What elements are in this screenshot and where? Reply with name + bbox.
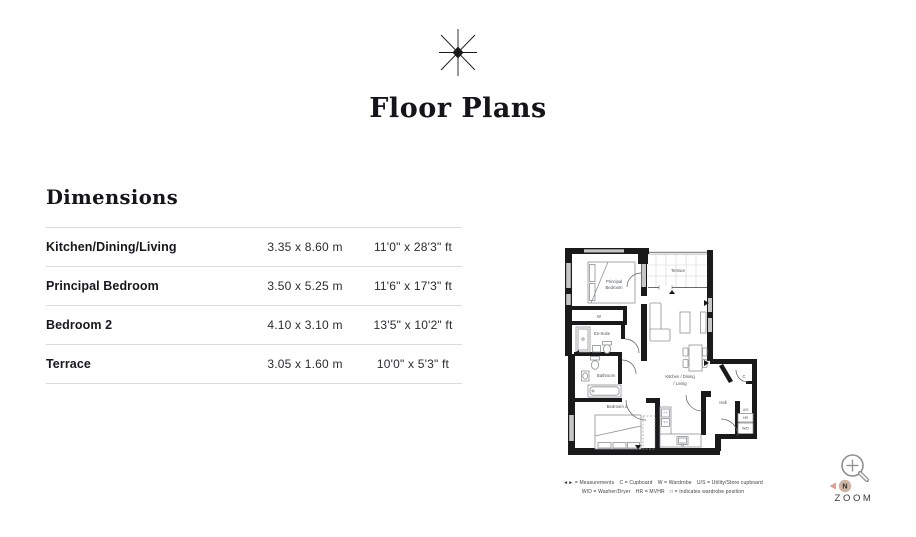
room-name: Terrace	[46, 357, 246, 371]
room-label-wardrobe: W	[597, 314, 601, 319]
room-label-bathroom: Bathroom	[597, 373, 616, 378]
table-row: Principal Bedroom 3.50 x 5.25 m 11'6" x …	[46, 266, 462, 305]
dimensions-heading: Dimensions	[46, 186, 178, 209]
metric-dimension: 3.35 x 8.60 m	[246, 240, 364, 254]
room-label-principal-bedroom-2: Bedroom	[606, 285, 624, 290]
label-heat-recovery: HR	[743, 416, 749, 420]
room-name: Bedroom 2	[46, 318, 246, 332]
floorplan-legend-line2: W/D = Washer/Dryer HR = MVHR □ = Indicat…	[552, 489, 774, 495]
cursor-badge-letter: N	[842, 482, 847, 491]
label-utility-store: U/S	[743, 408, 750, 412]
room-label-kitchen-2: / Living	[673, 381, 687, 386]
room-label-hall: Hall	[719, 400, 726, 405]
label-appliance-top: O-S	[663, 412, 668, 415]
metric-dimension: 3.50 x 5.25 m	[246, 279, 364, 293]
page-title: Floor Plans	[0, 93, 916, 125]
table-row: Kitchen/Dining/Living 3.35 x 8.60 m 11'0…	[46, 227, 462, 266]
imperial-dimension: 10'0" x 5'3" ft	[364, 357, 462, 371]
room-label-cupboard: C	[742, 374, 745, 379]
floor-plans-page: Floor Plans Dimensions Kitchen/Dining/Li…	[0, 0, 916, 537]
imperial-dimension: 13'5" x 10'2" ft	[364, 318, 462, 332]
imperial-dimension: 11'0" x 28'3" ft	[364, 240, 462, 254]
room-label-kitchen: Kitchen / Dining	[665, 374, 695, 379]
room-name: Principal Bedroom	[46, 279, 246, 293]
label-appliance-bottom: S.O	[663, 421, 667, 424]
room-name: Kitchen/Dining/Living	[46, 240, 246, 254]
table-row: Bedroom 2 4.10 x 3.10 m 13'5" x 10'2" ft	[46, 305, 462, 344]
metric-dimension: 4.10 x 3.10 m	[246, 318, 364, 332]
zoom-button[interactable]: N ZOOM	[820, 449, 888, 511]
metric-dimension: 3.05 x 1.60 m	[246, 357, 364, 371]
room-label-terrace: Terrace	[671, 268, 686, 273]
floorplan-legend-line1: ◄► = Measurements C = Cupboard W = Wardr…	[552, 480, 774, 486]
sparkle-star-icon	[434, 27, 482, 77]
room-label-principal-bedroom: Principal	[606, 279, 622, 284]
label-washer-dryer: W/D	[742, 426, 749, 430]
table-row: Terrace 3.05 x 1.60 m 10'0" x 5'3" ft	[46, 344, 462, 383]
zoom-label: ZOOM	[820, 493, 888, 504]
room-label-bedroom2: Bedroom 2	[607, 404, 628, 409]
room-label-ensuite: En-Suite	[594, 331, 611, 336]
cursor-badge-icon: N	[826, 478, 858, 494]
imperial-dimension: 11'6" x 17'3" ft	[364, 279, 462, 293]
dimensions-table: Kitchen/Dining/Living 3.35 x 8.60 m 11'0…	[46, 227, 462, 384]
floor-plan: Principal Bedroom Terrace W En-Suite Bat…	[558, 243, 768, 468]
